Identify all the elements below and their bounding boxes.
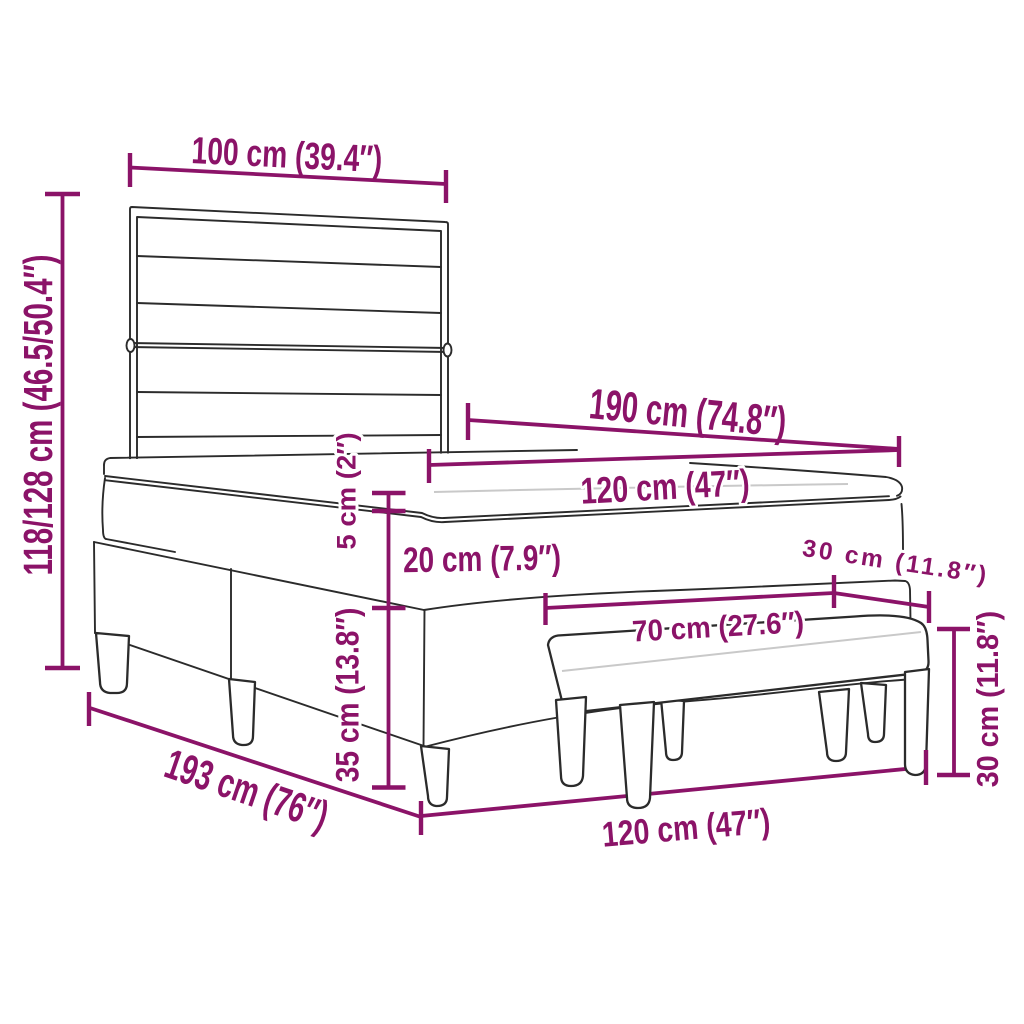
svg-text:118/128 cm (46.5/50.4″): 118/128 cm (46.5/50.4″) — [15, 254, 61, 575]
svg-text:30 cm (11.8″): 30 cm (11.8″) — [971, 611, 1005, 787]
svg-text:35 cm (13.8″): 35 cm (13.8″) — [331, 608, 366, 783]
svg-text:5 cm (2″): 5 cm (2″) — [331, 432, 362, 549]
svg-text:20 cm (7.9″): 20 cm (7.9″) — [403, 537, 562, 580]
svg-text:120 cm (47″): 120 cm (47″) — [580, 462, 751, 512]
